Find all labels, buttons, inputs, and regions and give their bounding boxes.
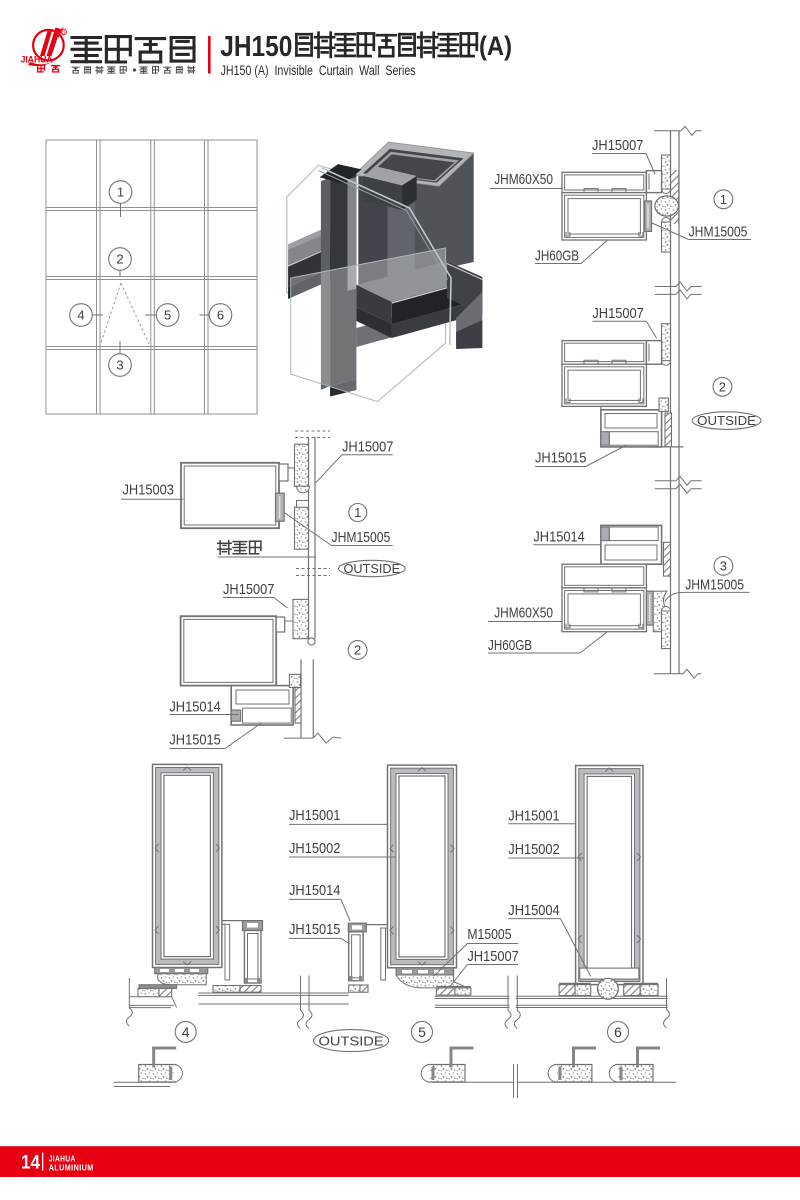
svg-text:2: 2	[354, 643, 361, 658]
svg-text:JH15007: JH15007	[592, 137, 643, 154]
svg-text:JH15001: JH15001	[289, 807, 340, 824]
svg-text:JH15002: JH15002	[508, 841, 559, 858]
svg-text:3: 3	[116, 358, 123, 373]
svg-text:14: 14	[21, 1152, 40, 1174]
svg-text:JH15007: JH15007	[223, 581, 274, 598]
svg-text:JH60GB: JH60GB	[535, 248, 579, 265]
svg-text:JHM15005: JHM15005	[685, 576, 744, 593]
svg-text:6: 6	[614, 1024, 622, 1040]
svg-text:JH15001: JH15001	[508, 807, 559, 824]
svg-text:JH15002: JH15002	[289, 840, 340, 857]
svg-text:JH15007: JH15007	[342, 439, 393, 456]
svg-text:JHM60X50: JHM60X50	[494, 171, 553, 188]
svg-text:5: 5	[418, 1024, 426, 1040]
svg-text:JHM60X50: JHM60X50	[494, 604, 553, 621]
svg-text:1: 1	[354, 505, 361, 520]
svg-text:4: 4	[77, 308, 84, 323]
svg-text:JH15014: JH15014	[533, 529, 584, 546]
svg-text:OUTSIDE: OUTSIDE	[344, 562, 401, 576]
svg-text:JH15014: JH15014	[169, 699, 220, 716]
svg-text:(A): (A)	[479, 31, 512, 61]
svg-text:JIAHUA: JIAHUA	[21, 55, 53, 66]
svg-text:JH15015: JH15015	[535, 449, 586, 466]
svg-text:JH60GB: JH60GB	[488, 637, 532, 654]
svg-text:JHM15005: JHM15005	[332, 529, 391, 546]
svg-text:JH15007: JH15007	[592, 305, 643, 322]
svg-text:JHM15005: JHM15005	[689, 224, 748, 241]
svg-text:JH15015: JH15015	[169, 732, 220, 749]
svg-text:5: 5	[164, 308, 171, 323]
svg-text:1: 1	[117, 185, 124, 200]
svg-text:6: 6	[217, 308, 224, 323]
svg-text:JIAHUA: JIAHUA	[49, 1155, 76, 1164]
svg-text:OUTSIDE: OUTSIDE	[319, 1033, 385, 1048]
svg-text:2: 2	[719, 379, 726, 394]
svg-text:JH150 (A) Invisible Curtain: JH150 (A) Invisible Curtain Wall Series	[221, 62, 416, 78]
svg-text:M15005: M15005	[467, 926, 511, 943]
svg-text:JH150: JH150	[220, 31, 292, 63]
svg-text:JH15014: JH15014	[289, 882, 340, 899]
svg-text:JH15004: JH15004	[508, 902, 559, 919]
svg-text:1: 1	[720, 192, 727, 207]
svg-text:OUTSIDE: OUTSIDE	[697, 414, 756, 428]
svg-text:ALUMINIUM: ALUMINIUM	[49, 1163, 94, 1172]
svg-text:JH15015: JH15015	[289, 921, 340, 938]
svg-text:4: 4	[182, 1024, 190, 1040]
svg-text:3: 3	[720, 559, 727, 574]
svg-text:JH15003: JH15003	[123, 482, 174, 499]
svg-text:JH15007: JH15007	[467, 948, 518, 965]
svg-text:2: 2	[116, 252, 123, 267]
